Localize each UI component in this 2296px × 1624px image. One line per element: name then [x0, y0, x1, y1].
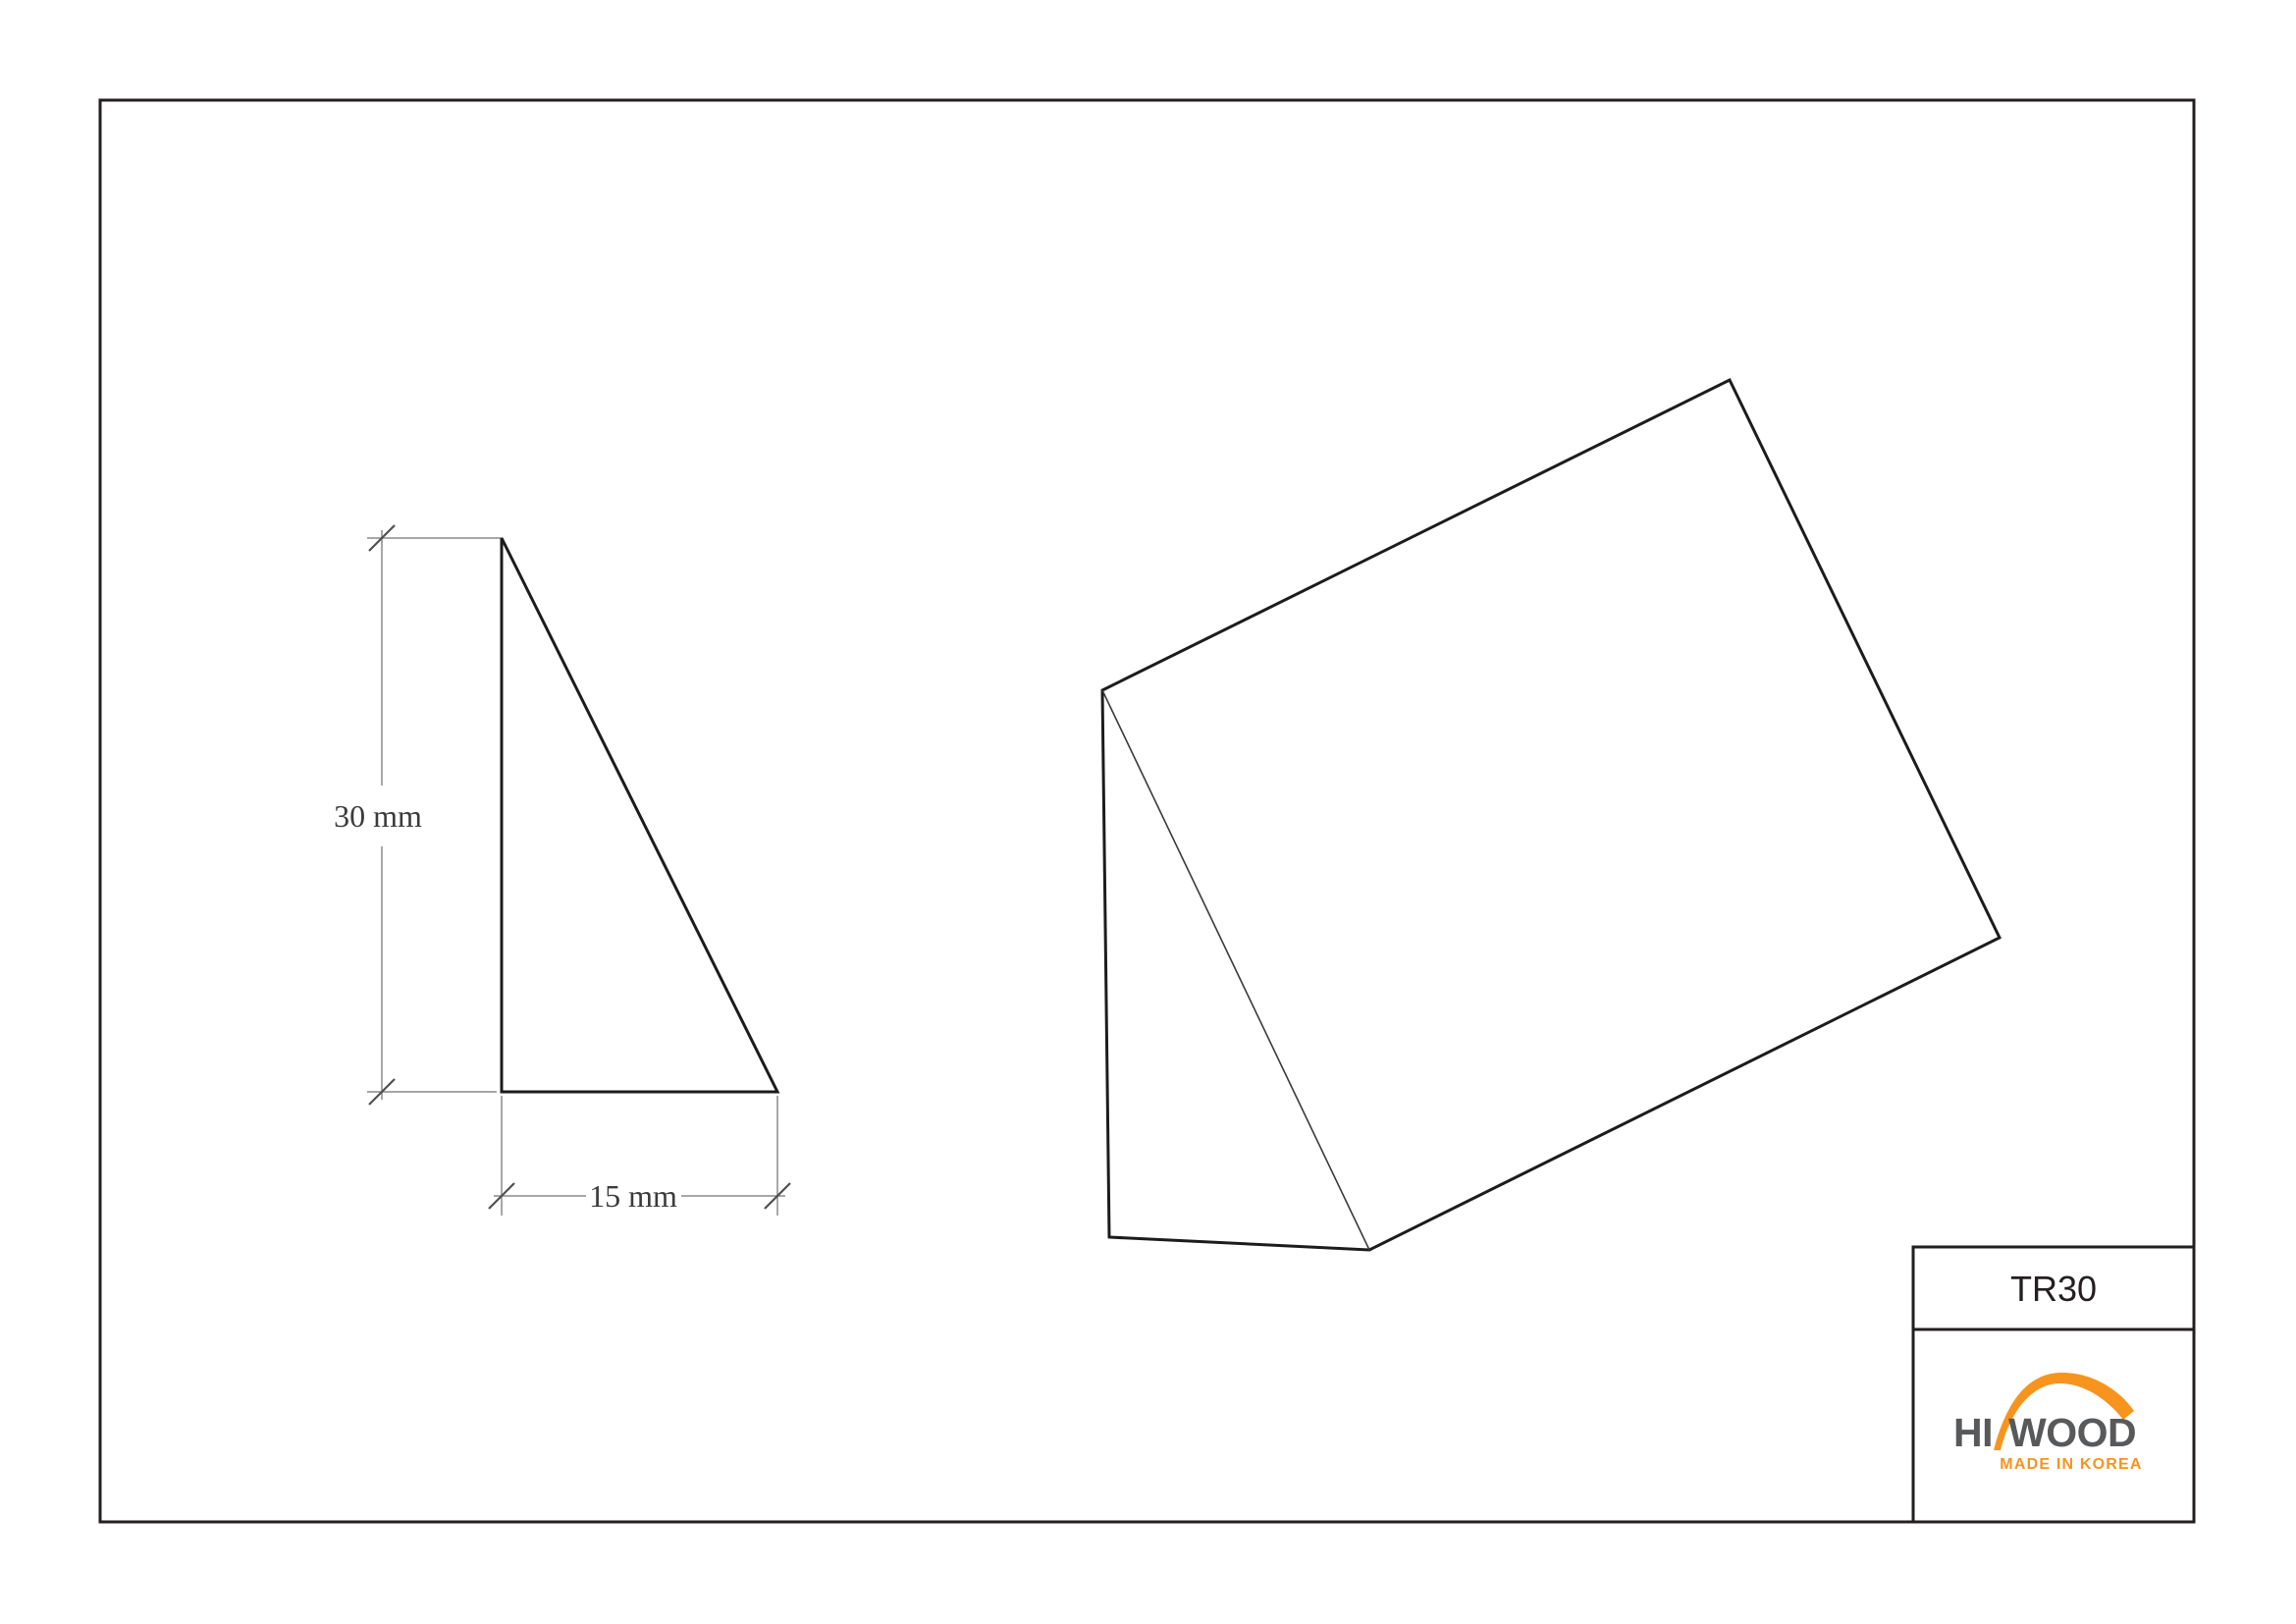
width-dimension: 15 mm — [489, 1096, 790, 1216]
technical-drawing-canvas: 30 mm 15 mm TR30 — [0, 0, 2296, 1624]
title-block: TR30 HI WOOD MADE IN KOREA — [1913, 1247, 2194, 1522]
logo-word-wood: WOOD — [2008, 1410, 2136, 1455]
front-view-cross-section: 30 mm 15 mm — [334, 525, 790, 1216]
prism-outline — [1102, 380, 2000, 1250]
model-code-label: TR30 — [2010, 1269, 2097, 1309]
height-dimension-label: 30 mm — [334, 798, 422, 834]
profile-triangle — [502, 538, 777, 1092]
height-dimension: 30 mm — [334, 525, 502, 1105]
logo-tagline: MADE IN KOREA — [2000, 1456, 2142, 1473]
logo-word-hi: HI — [1953, 1410, 1993, 1455]
drawing-sheet: 30 mm 15 mm TR30 — [0, 0, 2296, 1624]
width-dimension-label: 15 mm — [589, 1178, 677, 1214]
iso-view-prism — [1102, 380, 2000, 1250]
